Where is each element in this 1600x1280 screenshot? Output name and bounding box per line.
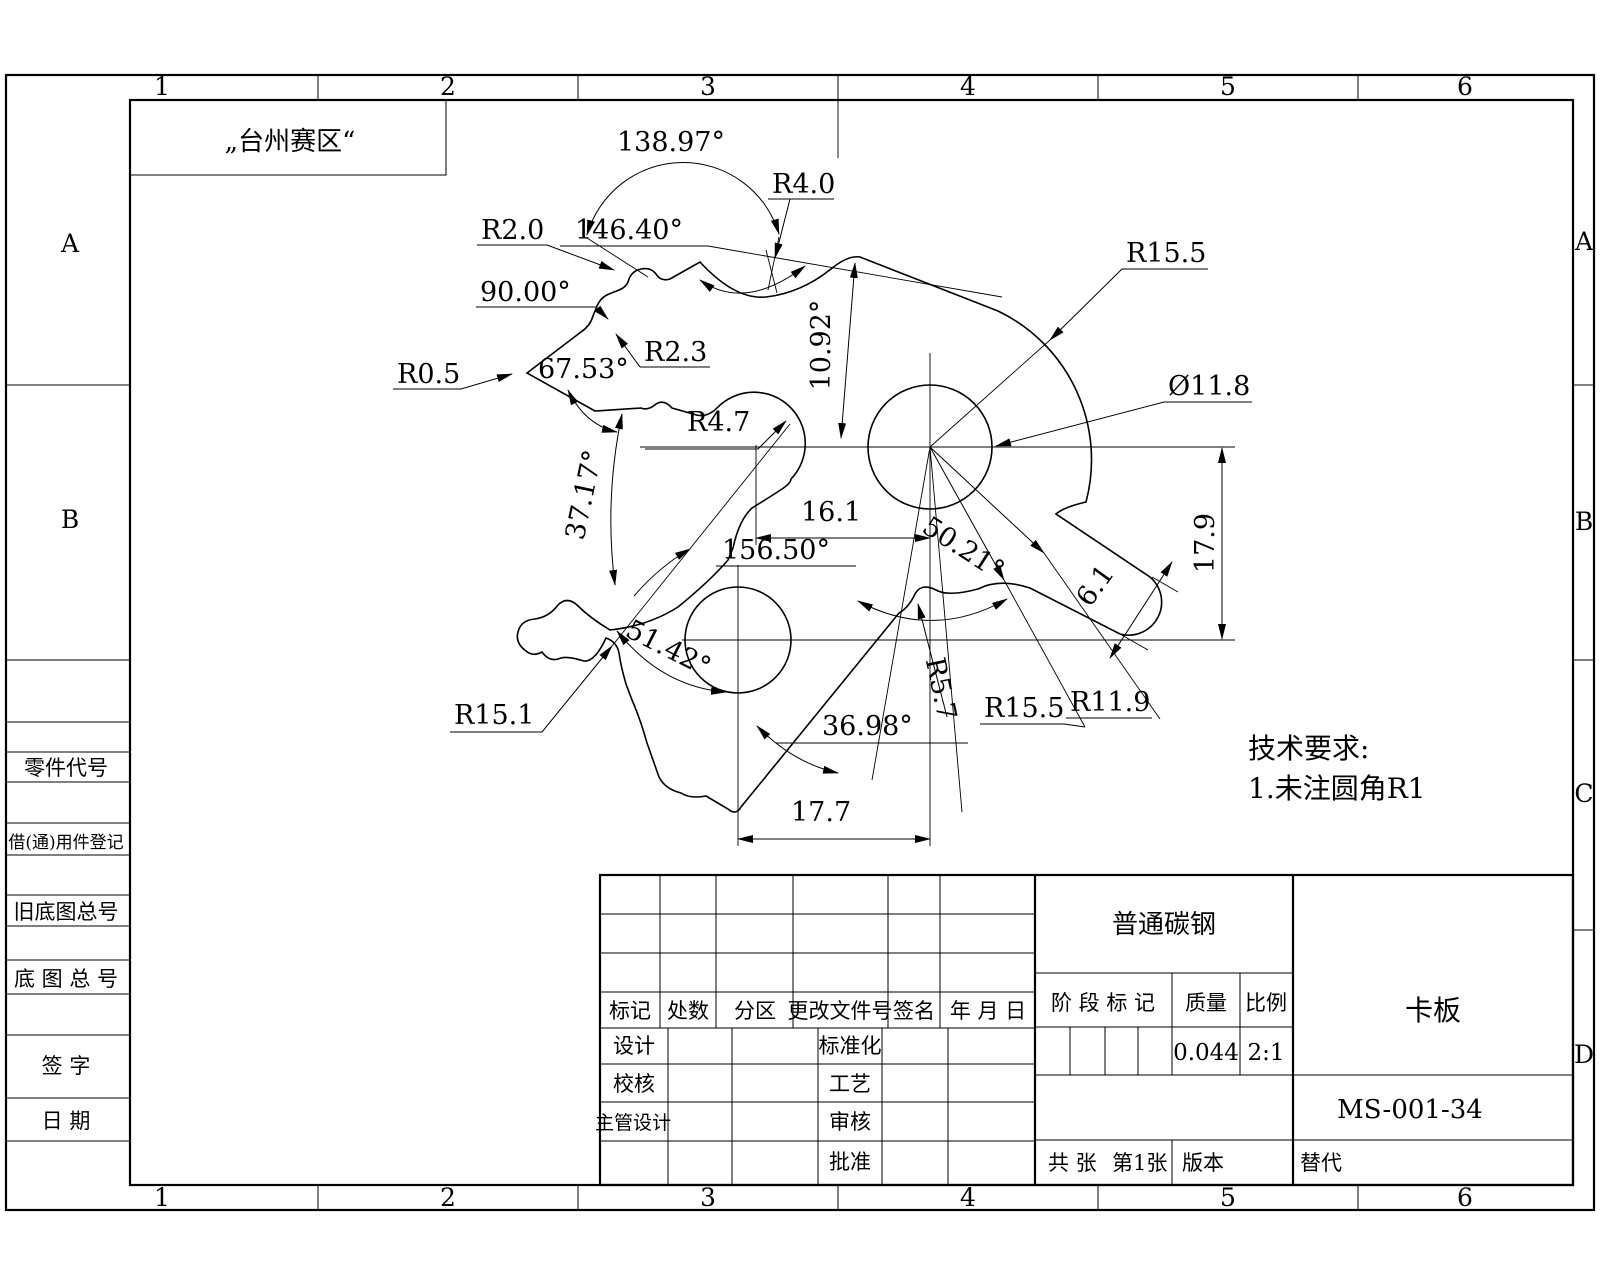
tb-scale-value: 2:1 [1247, 1040, 1284, 1066]
zone-top-6: 6 [1457, 72, 1473, 101]
zone-right-D: D [1574, 1040, 1594, 1069]
dim-r4-0: R4.0 [772, 169, 835, 200]
field-master-no: 底 图 总 号 [14, 967, 118, 991]
tech-req-title: 技术要求: [1248, 732, 1369, 765]
tb-check: 校核 [613, 1072, 655, 1096]
dim-angle-37-17: 37.17° [560, 447, 609, 542]
tb-replace: 替代 [1300, 1151, 1342, 1175]
dim-r15-5-bottom: R15.5 [984, 693, 1064, 724]
tb-approve: 批准 [829, 1150, 871, 1174]
zone-left-B: B [61, 505, 79, 534]
border-note: „台州赛区“ [225, 127, 356, 157]
zone-bottom-2: 2 [440, 1183, 456, 1212]
zone-bottom-6: 6 [1457, 1183, 1473, 1212]
dim-r0-5: R0.5 [397, 359, 460, 390]
dim-angle-36-98: 36.98° [822, 711, 913, 742]
dim-angle-10-92: 10.92° [806, 300, 837, 391]
tb-version: 版本 [1182, 1151, 1224, 1175]
dim-r2-3: R2.3 [644, 337, 707, 368]
tb-mass-value: 0.044 [1173, 1040, 1239, 1066]
dim-r5-7: R5.7 [919, 655, 962, 723]
tb-process: 工艺 [829, 1072, 871, 1096]
title-block: 标记 处数 分区 更改文件号 签名 年 月 日 设计 标准化 校核 工艺 主管设… [595, 875, 1573, 1185]
sheet-border [6, 75, 1594, 1210]
note-box: „台州赛区“ [130, 100, 446, 175]
tb-part-name: 卡板 [1405, 994, 1461, 1027]
dim-r15-5-top: R15.5 [1126, 238, 1206, 269]
tb-material: 普通碳钢 [1112, 910, 1216, 940]
cad-drawing: 1 2 3 4 5 6 1 2 3 4 5 6 A B A B C D „台州赛… [0, 0, 1600, 1280]
tb-header-zone: 分区 [734, 999, 776, 1023]
zone-right-A: A [1574, 227, 1594, 256]
zone-top-2: 2 [440, 72, 456, 101]
dim-angle-67-53: 67.53° [538, 354, 629, 385]
zone-bottom-1: 1 [154, 1183, 170, 1212]
dim-17-9: 17.9 [1190, 513, 1221, 573]
field-signature: 签 字 [42, 1054, 91, 1078]
zone-right-C: C [1574, 779, 1593, 808]
dim-angle-90-00: 90.00° [480, 277, 571, 308]
dim-angle-51-42: 51.42° [621, 614, 716, 683]
margin-fields: 零件代号 借(通)用件登记 旧底图总号 底 图 总 号 签 字 日 期 [6, 722, 130, 1141]
tb-chief-design: 主管设计 [595, 1112, 671, 1134]
tb-header-doc-no: 更改文件号 [788, 999, 893, 1023]
dim-angle-50-21: 50.21° [917, 511, 1010, 586]
dim-angle-138-97: 138.97° [617, 127, 725, 158]
field-date: 日 期 [42, 1109, 91, 1133]
field-old-master-no: 旧底图总号 [14, 900, 119, 924]
dim-6-1: 6.1 [1070, 559, 1120, 612]
zone-bottom-5: 5 [1220, 1183, 1236, 1212]
dim-dia-11-8: Ø11.8 [1168, 371, 1250, 402]
field-part-no: 零件代号 [24, 756, 108, 780]
field-borrow-reg: 借(通)用件登记 [8, 833, 123, 853]
tb-header-sign: 签名 [893, 999, 935, 1023]
dim-angle-156-50: 156.50° [722, 535, 830, 566]
dim-17-7: 17.7 [791, 797, 851, 828]
dim-angle-146-40: 146.40° [575, 215, 683, 246]
tb-sheet-page: 第1张 [1112, 1151, 1167, 1175]
dim-r2-0: R2.0 [481, 215, 544, 246]
dim-r15-1: R15.1 [454, 700, 534, 731]
dim-r11-9: R11.9 [1070, 687, 1150, 718]
tb-mass-label: 质量 [1185, 991, 1227, 1015]
tb-scale-label: 比例 [1245, 991, 1287, 1015]
zone-top-4: 4 [960, 72, 976, 101]
tb-sheet-total: 共 张 [1048, 1151, 1097, 1175]
zone-top-5: 5 [1220, 72, 1236, 101]
zone-bottom-3: 3 [700, 1183, 716, 1212]
zone-bottom-4: 4 [960, 1183, 976, 1212]
tb-design: 设计 [613, 1034, 655, 1058]
dimension-labels: 138.97° R4.0 R2.0 146.40° 90.00° R2.3 R0… [397, 127, 1250, 828]
tb-standardize: 标准化 [819, 1034, 882, 1058]
dim-r4-7: R4.7 [687, 407, 750, 438]
zone-right-B: B [1575, 507, 1593, 536]
zone-left-A: A [60, 229, 80, 258]
tech-req-item-1: 1.未注圆角R1 [1248, 772, 1426, 805]
technical-requirements: 技术要求: 1.未注圆角R1 [1248, 732, 1426, 805]
zone-top-1: 1 [154, 72, 170, 101]
tb-drawing-no: MS-001-34 [1337, 1095, 1483, 1125]
dim-16-1: 16.1 [801, 497, 861, 528]
drawing-sheet: 1 2 3 4 5 6 1 2 3 4 5 6 A B A B C D „台州赛… [0, 0, 1600, 1280]
tb-header-mark: 标记 [609, 999, 651, 1023]
tb-header-count: 处数 [667, 999, 709, 1023]
zone-top-3: 3 [700, 72, 716, 101]
tb-audit: 审核 [829, 1110, 871, 1134]
tb-stage-label: 阶 段 标 记 [1051, 991, 1155, 1015]
tb-header-date: 年 月 日 [950, 999, 1026, 1023]
